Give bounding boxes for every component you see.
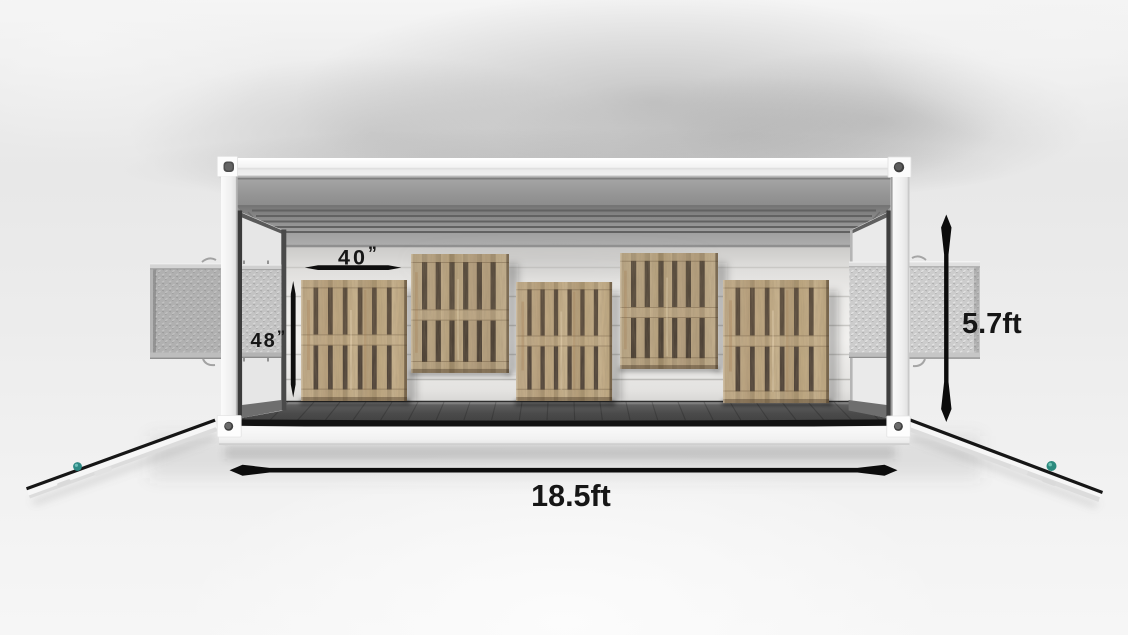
svg-text:18.5ft: 18.5ft (531, 479, 611, 513)
svg-text:5.7ft: 5.7ft (962, 308, 1022, 340)
